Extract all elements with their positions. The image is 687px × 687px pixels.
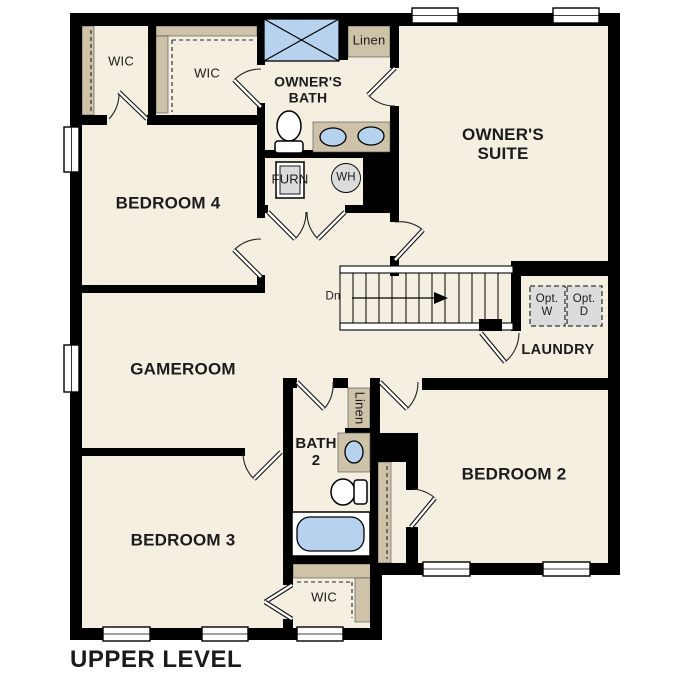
opt-washer-label: Opt. W (536, 293, 559, 319)
shower-icon (264, 19, 339, 61)
water-heater-label: WH (336, 172, 356, 185)
wic-owner-shelf-left (156, 36, 168, 113)
linen-upper-label: Linen (353, 34, 386, 49)
wic-owner-shelf-top (156, 26, 257, 36)
owners-bath-toilet-icon (275, 111, 303, 153)
chase-lower (368, 433, 418, 462)
opt-dryer-label: Opt. D (573, 293, 596, 319)
bathtub-icon (292, 512, 370, 556)
floorplan-page: WIC WIC Linen OWNER'S BATH OWNER'S SUITE… (0, 0, 687, 687)
bedroom4-label: BEDROOM 4 (116, 193, 221, 212)
sink-icon (320, 128, 346, 146)
stairs-down-label: Dn (325, 291, 340, 304)
chase-upper (363, 152, 399, 213)
wic3-shelf-right (355, 578, 372, 622)
plan-title: UPPER LEVEL (70, 646, 242, 674)
gameroom-label: GAMEROOM (130, 359, 235, 378)
bedroom2-label: BEDROOM 2 (462, 464, 567, 483)
wic3-shelf-top (293, 564, 372, 578)
bedroom3-label: BEDROOM 3 (131, 530, 236, 549)
sink-icon (345, 441, 363, 463)
bath2-toilet-icon (331, 479, 367, 505)
laundry-label: LAUNDRY (521, 342, 594, 358)
owners-bath-label: OWNER'S BATH (274, 74, 342, 105)
wic-bedroom3-label: WIC (311, 591, 337, 606)
wic-bedroom4-label: WIC (108, 55, 134, 70)
furnace-label: FURN (272, 173, 309, 188)
owners-bath-vanity (313, 122, 390, 152)
wic-owners-label: WIC (194, 67, 220, 82)
linen-bath2-label: Linen (352, 392, 367, 425)
owners-suite-label: OWNER'S SUITE (462, 125, 544, 163)
bath2-label: BATH 2 (295, 436, 336, 470)
bedroom2-closet-shelf (378, 462, 391, 563)
bath2-vanity (338, 433, 370, 472)
wic4-shelf (82, 26, 94, 115)
sink-icon (358, 127, 384, 145)
